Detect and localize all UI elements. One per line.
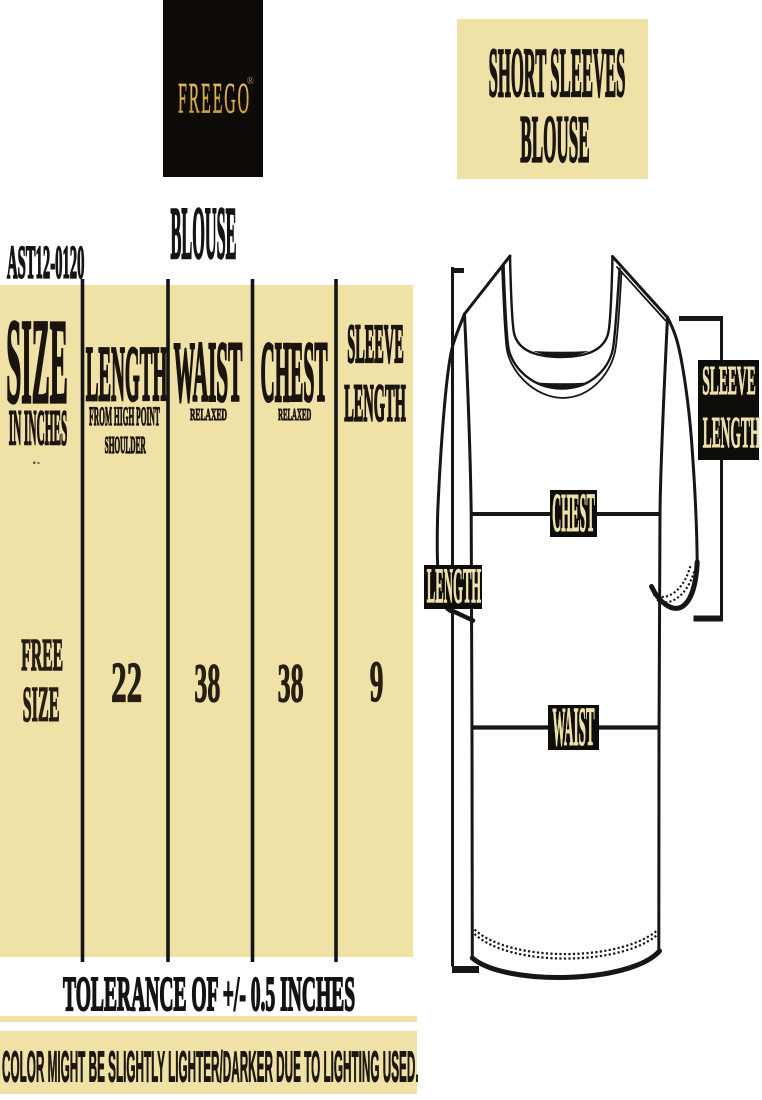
svg-text:TOLERANCE OF +/- 0.5 INCHES: TOLERANCE OF +/- 0.5 INCHES [63, 968, 355, 1022]
svg-text:WAIST: WAIST [552, 695, 594, 757]
svg-text:BLOUSE: BLOUSE [520, 101, 589, 176]
svg-text:SHOULDER: SHOULDER [105, 431, 146, 458]
svg-text:SLEEVE: SLEEVE [702, 358, 756, 404]
svg-text:SLEEVE: SLEEVE [347, 313, 404, 375]
svg-text:CHEST: CHEST [552, 481, 595, 543]
svg-text:FROM HIGH POINT: FROM HIGH POINT [89, 403, 160, 432]
svg-text:38: 38 [194, 654, 220, 714]
svg-text:SIZE: SIZE [23, 677, 60, 732]
svg-text:LENGTH: LENGTH [703, 409, 761, 458]
svg-text:FREEGO: FREEGO [178, 75, 251, 123]
svg-text:22: 22 [111, 651, 142, 714]
svg-text:®: ® [247, 76, 254, 88]
svg-text:LENGTH: LENGTH [427, 557, 481, 613]
svg-text:38: 38 [278, 654, 304, 714]
svg-text:AST12-0120: AST12-0120 [7, 236, 84, 289]
svg-text:9: 9 [370, 650, 384, 714]
svg-text:RELAXED: RELAXED [278, 404, 311, 424]
svg-text:BLOUSE: BLOUSE [171, 192, 237, 275]
svg-text:COLOR MIGHT BE SLIGHTLY LIGHTE: COLOR MIGHT BE SLIGHTLY LIGHTER/DARKER D… [2, 1042, 419, 1091]
svg-text:LENGTH: LENGTH [344, 375, 406, 432]
svg-text:FREE: FREE [21, 630, 63, 681]
svg-text:IN INCHES: IN INCHES [9, 400, 68, 455]
svg-text:RELAXED: RELAXED [190, 405, 227, 424]
